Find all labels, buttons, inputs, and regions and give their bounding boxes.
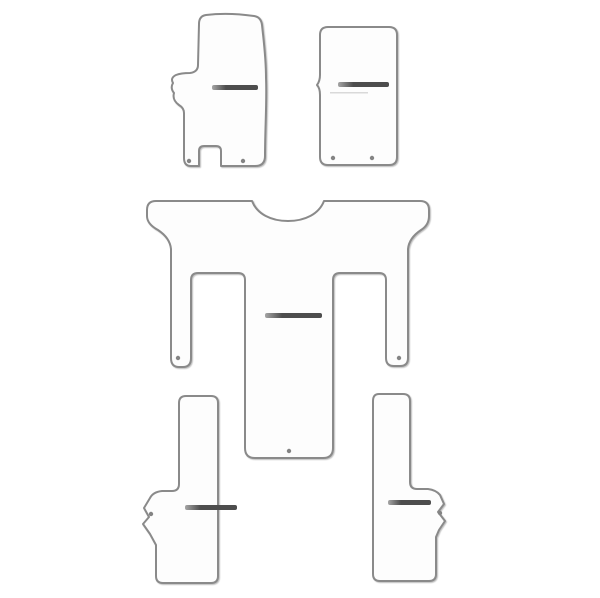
rear-left-strip-mat [143,396,237,583]
fixing-point [438,511,442,515]
fixing-point [241,159,245,163]
fixing-point [331,156,335,160]
logo-underline [330,92,368,94]
rear-left-strip-mat-outline [143,396,218,583]
car-mat-set-product-image [0,0,600,598]
fixing-point [187,159,191,163]
fixing-point [149,512,153,516]
rear-right-strip-mat [373,394,445,581]
front-left-mat [172,14,267,166]
front-right-mat [317,27,397,165]
brand-logo-bar [265,313,322,318]
front-right-mat-outline [317,27,397,165]
rear-right-strip-mat-outline [373,394,445,581]
mat-set-illustration [0,0,600,598]
fixing-point [370,156,374,160]
brand-logo-bar [212,85,258,90]
brand-logo-bar [185,505,237,510]
brand-logo-bar [388,500,431,505]
brand-logo-bar [338,82,389,87]
fixing-point [176,356,180,360]
fixing-point [287,449,291,453]
fixing-point [397,356,401,360]
